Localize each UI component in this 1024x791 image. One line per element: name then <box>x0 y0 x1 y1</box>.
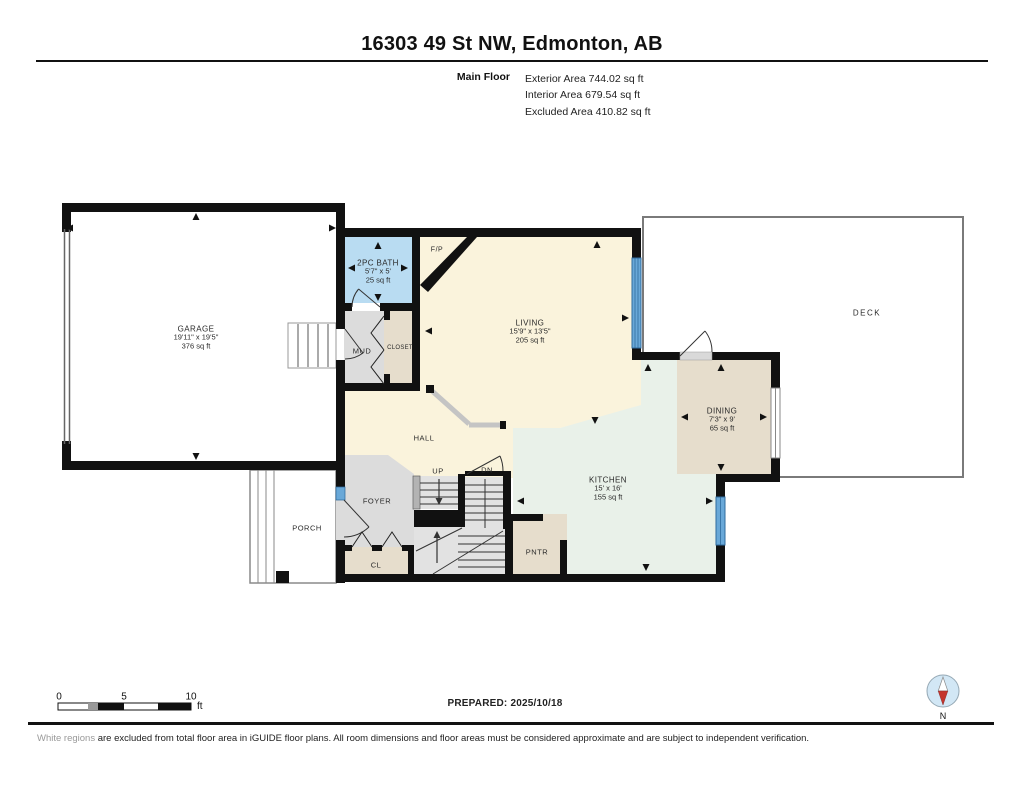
room-label-living: LIVING 15'9" x 13'5" 205 sq ft <box>509 319 550 346</box>
floorplan-page: 16303 49 St NW, Edmonton, AB Main Floor … <box>0 0 1024 791</box>
footer-divider <box>28 722 994 725</box>
scale-tick-5: 5 <box>121 692 127 703</box>
scale-tick-10: 10 <box>185 692 196 703</box>
compass-north-label: N <box>940 711 947 721</box>
room-label-closet: CLOSET <box>387 345 413 351</box>
disclaimer-rest: are excluded from total floor area in iG… <box>95 733 809 744</box>
floorplan-graphic <box>0 0 1024 791</box>
room-label-mud: MUD <box>353 347 372 356</box>
room-label-pantry: PNTR <box>526 548 548 557</box>
compass-icon <box>927 675 959 707</box>
fireplace-label: F/P <box>431 247 443 254</box>
scale-unit: ft <box>197 701 203 712</box>
room-label-kitchen: KITCHEN 15' x 16' 155 sq ft <box>589 476 627 503</box>
scale-tick-0: 0 <box>56 692 62 703</box>
room-label-bath: 2PC BATH 5'7" x 5' 25 sq ft <box>357 259 399 286</box>
room-label-deck: DECK <box>853 309 881 318</box>
stairs-dn-label: DN <box>481 466 493 475</box>
prepared-date: PREPARED: 2025/10/18 <box>448 698 563 709</box>
room-label-foyer: FOYER <box>363 497 391 506</box>
scale-bar-graphic <box>58 703 191 710</box>
disclaimer-text: White regions are excluded from total fl… <box>37 733 997 744</box>
stairs-up-label: UP <box>432 467 443 476</box>
room-label-porch: PORCH <box>292 524 322 533</box>
room-label-hall: HALL <box>414 434 435 443</box>
disclaimer-highlight: White regions <box>37 733 95 744</box>
room-label-cl: CL <box>371 561 382 570</box>
garage-door <box>65 229 70 444</box>
room-label-garage: GARAGE 19'11" x 19'5" 376 sq ft <box>174 325 219 352</box>
room-label-dining: DINING 7'3" x 9' 65 sq ft <box>707 407 737 434</box>
